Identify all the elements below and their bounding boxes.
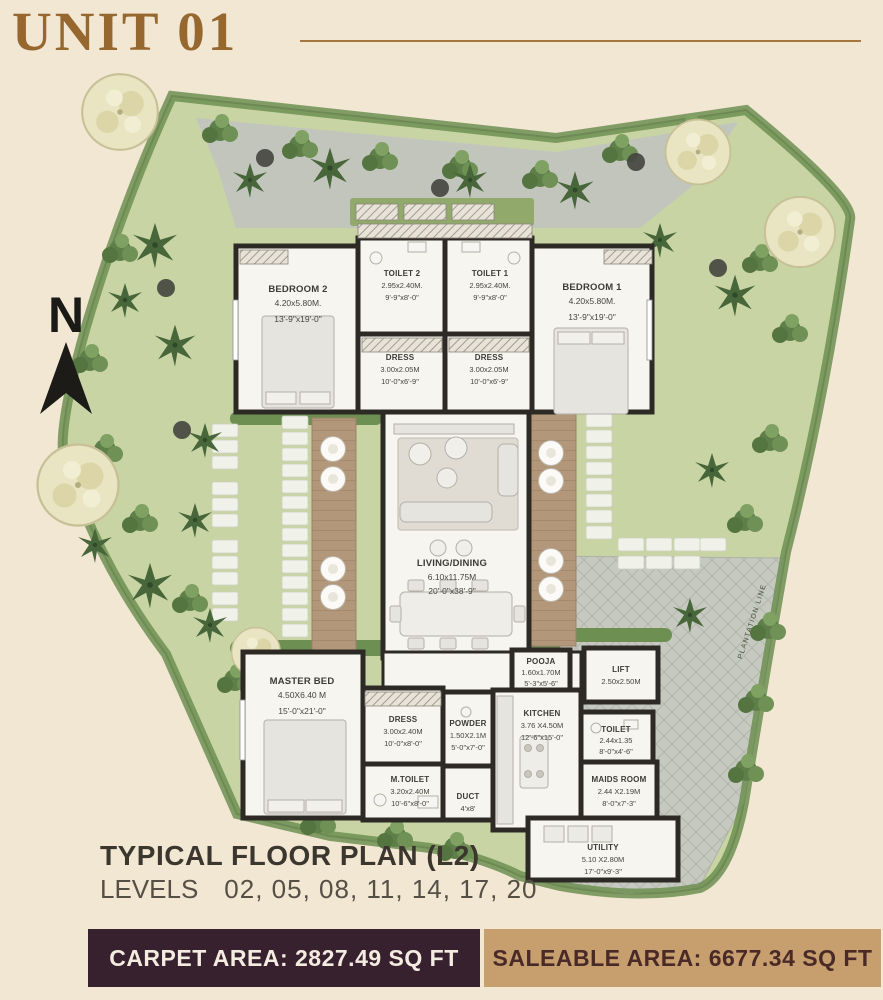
svg-text:M.TOILET: M.TOILET [391, 775, 430, 784]
label-dress-left: DRESS 3.00x2.05M 10'-0"x6'-9" [380, 353, 419, 386]
stove [520, 736, 548, 788]
wc [591, 723, 601, 733]
right-deck [530, 414, 576, 646]
levels-line: LEVELS02, 05, 08, 11, 14, 17, 20 [100, 874, 538, 905]
label-pooja: POOJA 1.60x1.70M 5'-3"x5'-6" [521, 657, 560, 688]
svg-text:9'-9"x8'-0": 9'-9"x8'-0" [473, 293, 507, 302]
svg-text:4'x8': 4'x8' [461, 804, 477, 813]
svg-text:LIFT: LIFT [612, 665, 630, 674]
svg-text:TOILET: TOILET [601, 725, 631, 734]
svg-text:3.00x2.05M: 3.00x2.05M [469, 365, 508, 374]
wc [508, 252, 520, 264]
label-toilet-maid: TOILET 2.44x1.35 8'-0"x4'-6" [599, 725, 633, 756]
svg-text:2.95x2.40M.: 2.95x2.40M. [469, 281, 510, 290]
wc [370, 252, 382, 264]
planter-bed [350, 198, 534, 226]
lounge-chair [445, 437, 467, 459]
label-kitchen: KITCHEN 3.76 X4.50M 12'-6"x15'-0" [521, 709, 564, 742]
svg-text:8'-0"x4'-6": 8'-0"x4'-6" [599, 747, 633, 756]
svg-text:1.60x1.70M: 1.60x1.70M [521, 668, 560, 677]
label-dress-right: DRESS 3.00x2.05M 10'-0"x6'-9" [469, 353, 508, 386]
saleable-area-banner: SALEABLE AREA: 6677.34 SQ FT [484, 929, 881, 987]
svg-text:10'-0"x6'-9": 10'-0"x6'-9" [470, 377, 508, 386]
label-bedroom-1: BEDROOM 1 4.20x5.80M. 13'-9"x19'-0" [562, 282, 622, 322]
svg-text:5'-3"x5'-6": 5'-3"x5'-6" [524, 679, 558, 688]
svg-text:5'-0"x7'-0": 5'-0"x7'-0" [451, 743, 485, 752]
label-m-toilet: M.TOILET 3.20x2.40M 10'-6"x8'-0" [390, 775, 429, 808]
svg-text:6.10x11.75M: 6.10x11.75M [428, 572, 477, 582]
svg-text:LIVING/DINING: LIVING/DINING [417, 558, 487, 569]
svg-text:TOILET 1: TOILET 1 [472, 269, 509, 278]
svg-text:10'-0"x6'-9": 10'-0"x6'-9" [381, 377, 419, 386]
label-powder: POWDER 1.50X2.1M 5'-0"x7'-0" [449, 719, 486, 752]
svg-text:UTILITY: UTILITY [587, 843, 619, 852]
svg-text:2.44 X2.19M: 2.44 X2.19M [598, 787, 641, 796]
kitchen-counter [497, 696, 513, 824]
svg-text:4.20x5.80M.: 4.20x5.80M. [275, 298, 322, 308]
svg-text:4.50X6.40 M: 4.50X6.40 M [278, 690, 326, 700]
svg-text:4.20x5.80M.: 4.20x5.80M. [569, 296, 616, 306]
washer [592, 826, 612, 842]
sofa [400, 502, 492, 522]
label-toilet-2: TOILET 2 2.95x2.40M. 9'-9"x8'-0" [381, 269, 422, 302]
svg-text:2.50x2.50M: 2.50x2.50M [601, 677, 640, 686]
svg-text:9'-9"x8'-0": 9'-9"x8'-0" [385, 293, 419, 302]
svg-text:5.10 X2.80M: 5.10 X2.80M [582, 855, 625, 864]
svg-text:DUCT: DUCT [456, 792, 479, 801]
washer [568, 826, 588, 842]
levels-values: 02, 05, 08, 11, 14, 17, 20 [224, 874, 537, 904]
svg-text:MASTER BED: MASTER BED [270, 676, 335, 687]
svg-text:12'-6"x15'-0": 12'-6"x15'-0" [521, 733, 563, 742]
svg-text:MAIDS ROOM: MAIDS ROOM [592, 775, 647, 784]
svg-text:10'-0"x8'-0": 10'-0"x8'-0" [384, 739, 422, 748]
svg-text:DRESS: DRESS [475, 353, 504, 362]
wc [374, 794, 386, 806]
wc [461, 707, 471, 717]
svg-text:3.20x2.40M: 3.20x2.40M [390, 787, 429, 796]
svg-text:DRESS: DRESS [389, 715, 418, 724]
coffee-table [437, 468, 457, 488]
svg-text:TOILET 2: TOILET 2 [384, 269, 421, 278]
lounge-chair [409, 443, 431, 465]
label-bedroom-2: BEDROOM 2 4.20x5.80M. 13'-9"x19'-0" [268, 284, 327, 324]
svg-text:10'-6"x8'-0": 10'-6"x8'-0" [391, 799, 429, 808]
room-powder [443, 692, 493, 766]
washer [544, 826, 564, 842]
svg-text:POOJA: POOJA [526, 657, 555, 666]
label-dress-master: DRESS 3.00x2.40M 10'-0"x8'-0" [383, 715, 422, 748]
svg-text:2.44x1.35: 2.44x1.35 [600, 736, 633, 745]
svg-text:8'-0"x7'-3": 8'-0"x7'-3" [602, 799, 636, 808]
plan-title: TYPICAL FLOOR PLAN (L2) [100, 840, 480, 872]
label-toilet-1: TOILET 1 2.95x2.40M. 9'-9"x8'-0" [469, 269, 510, 302]
left-deck [312, 418, 356, 652]
svg-text:KITCHEN: KITCHEN [524, 709, 561, 718]
svg-text:15'-0"x21'-0": 15'-0"x21'-0" [278, 706, 326, 716]
room-lift [584, 648, 658, 702]
armchair [498, 444, 518, 496]
svg-text:POWDER: POWDER [449, 719, 486, 728]
area-banners: CARPET AREA: 2827.49 SQ FT SALEABLE AREA… [88, 929, 881, 987]
dining-table [400, 592, 512, 636]
svg-text:17'-0"x9'-3": 17'-0"x9'-3" [584, 867, 622, 876]
svg-text:13'-9"x19'-0": 13'-9"x19'-0" [274, 314, 322, 324]
svg-text:3.76 X4.50M: 3.76 X4.50M [521, 721, 564, 730]
carpet-area-banner: CARPET AREA: 2827.49 SQ FT [88, 929, 480, 987]
north-label: N [48, 287, 84, 343]
svg-text:BEDROOM 2: BEDROOM 2 [268, 284, 327, 295]
svg-text:1.50X2.1M: 1.50X2.1M [450, 731, 486, 740]
tv-console [394, 424, 514, 434]
label-master-bed: MASTER BED 4.50X6.40 M 15'-0"x21'-0" [270, 676, 335, 716]
svg-text:BEDROOM 1: BEDROOM 1 [562, 282, 622, 293]
svg-text:2.95x2.40M.: 2.95x2.40M. [381, 281, 422, 290]
svg-text:DRESS: DRESS [386, 353, 415, 362]
svg-text:13'-9"x19'-0": 13'-9"x19'-0" [568, 312, 616, 322]
page: UNIT 01 [0, 0, 883, 1000]
svg-text:3.00x2.40M: 3.00x2.40M [383, 727, 422, 736]
label-utility: UTILITY 5.10 X2.80M 17'-0"x9'-3" [582, 843, 625, 876]
levels-label: LEVELS [100, 874, 198, 904]
svg-text:20'-0"x38'-9": 20'-0"x38'-9" [428, 586, 476, 596]
svg-text:3.00x2.05M: 3.00x2.05M [380, 365, 419, 374]
